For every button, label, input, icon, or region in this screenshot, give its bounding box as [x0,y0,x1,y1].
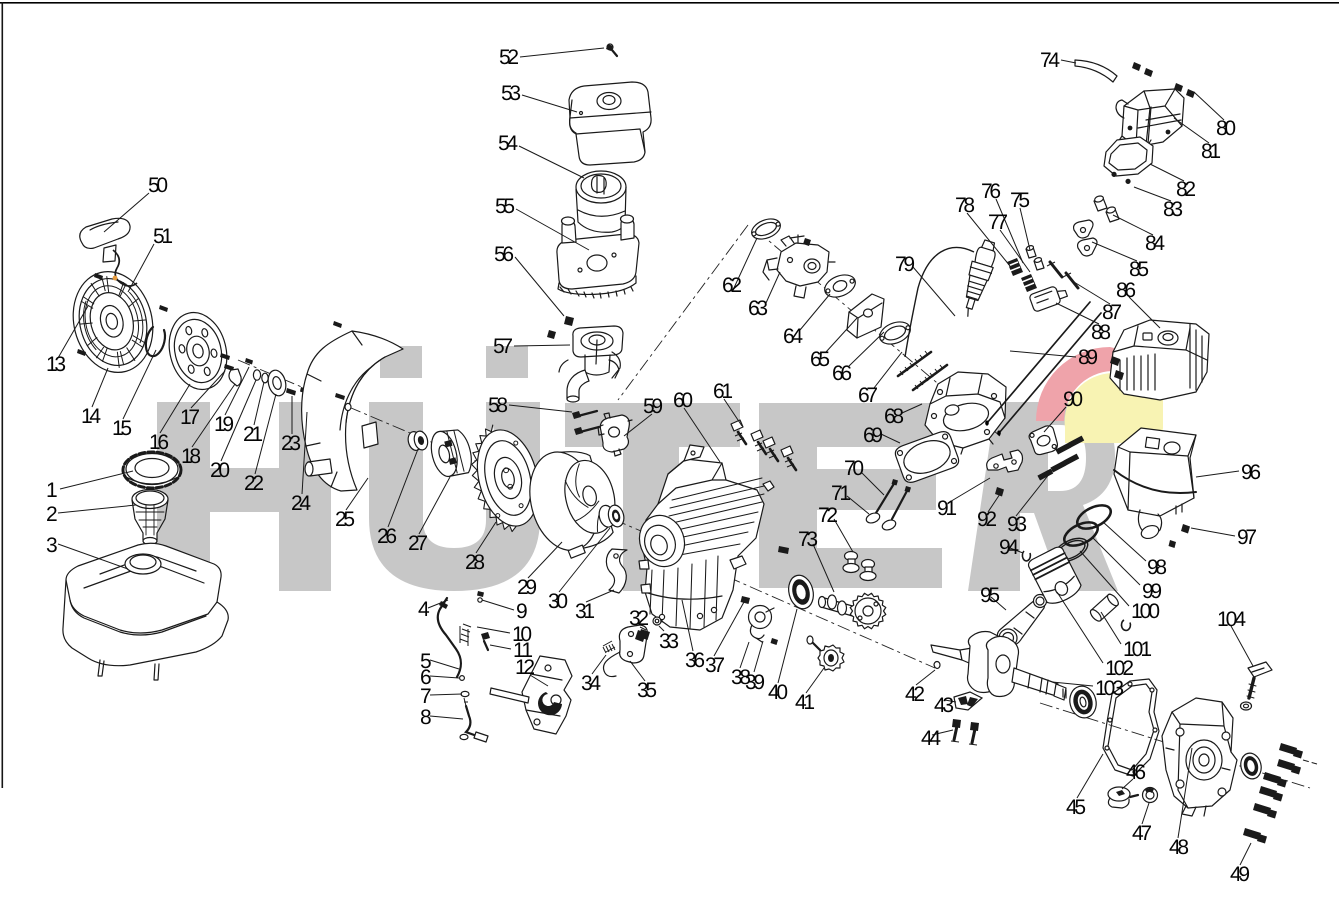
svg-text:48: 48 [1169,836,1189,859]
svg-text:19: 19 [214,413,234,436]
svg-text:31: 31 [575,600,595,623]
svg-text:72: 72 [818,504,838,527]
svg-text:36: 36 [685,649,705,672]
svg-text:84: 84 [1145,232,1165,255]
svg-text:28: 28 [465,551,485,574]
svg-text:9: 9 [516,600,528,623]
svg-text:98: 98 [1147,556,1167,579]
svg-text:78: 78 [955,194,975,217]
svg-text:1: 1 [46,479,58,502]
svg-text:103: 103 [1095,677,1124,700]
svg-text:94: 94 [999,536,1019,559]
svg-text:49: 49 [1230,863,1250,886]
svg-text:81: 81 [1201,140,1221,163]
svg-text:42: 42 [905,683,925,706]
svg-text:41: 41 [795,691,815,714]
svg-text:55: 55 [495,195,515,218]
svg-text:13: 13 [46,353,66,376]
svg-text:85: 85 [1129,258,1149,281]
svg-text:59: 59 [643,395,663,418]
svg-text:92: 92 [977,508,997,531]
svg-text:53: 53 [501,82,521,105]
svg-text:21: 21 [243,423,263,446]
svg-text:22: 22 [244,472,264,495]
svg-text:20: 20 [210,459,230,482]
svg-text:32: 32 [629,607,649,630]
svg-text:30: 30 [548,590,568,613]
svg-text:47: 47 [1132,822,1152,845]
svg-text:54: 54 [498,132,518,155]
svg-text:88: 88 [1091,321,1111,344]
svg-text:7: 7 [420,685,432,708]
svg-text:86: 86 [1116,279,1136,302]
svg-text:3: 3 [46,534,58,557]
svg-text:33: 33 [659,630,679,653]
svg-text:14: 14 [81,405,101,428]
svg-text:97: 97 [1237,526,1257,549]
svg-text:44: 44 [921,727,941,750]
svg-text:69: 69 [863,424,883,447]
svg-text:4: 4 [418,598,430,621]
svg-text:17: 17 [180,406,200,429]
svg-text:63: 63 [748,297,768,320]
svg-text:18: 18 [181,445,201,468]
svg-text:29: 29 [517,576,537,599]
svg-text:24: 24 [291,492,311,515]
svg-text:40: 40 [768,681,788,704]
svg-text:73: 73 [798,528,818,551]
svg-text:90: 90 [1063,388,1083,411]
svg-text:68: 68 [884,405,904,428]
svg-text:51: 51 [153,225,173,248]
svg-text:60: 60 [673,389,693,412]
svg-text:93: 93 [1007,513,1027,536]
svg-text:77: 77 [988,211,1008,234]
svg-text:52: 52 [499,46,519,69]
svg-text:12: 12 [515,656,535,679]
svg-text:74: 74 [1040,49,1060,72]
svg-text:65: 65 [810,348,830,371]
svg-text:27: 27 [408,532,428,555]
svg-text:25: 25 [335,508,355,531]
svg-text:16: 16 [149,431,169,454]
svg-text:79: 79 [895,253,915,276]
svg-text:89: 89 [1078,346,1098,369]
svg-text:100: 100 [1131,600,1160,623]
svg-text:70: 70 [844,457,864,480]
svg-text:61: 61 [713,380,733,403]
svg-text:15: 15 [112,417,132,440]
svg-text:96: 96 [1241,461,1261,484]
svg-text:67: 67 [858,384,878,407]
svg-text:2: 2 [46,503,58,526]
svg-text:64: 64 [783,325,803,348]
svg-text:50: 50 [148,174,168,197]
svg-text:75: 75 [1010,189,1030,212]
svg-text:39: 39 [745,671,765,694]
svg-text:26: 26 [377,525,397,548]
svg-text:104: 104 [1217,608,1246,631]
svg-text:76: 76 [981,180,1001,203]
svg-text:43: 43 [934,694,954,717]
svg-text:37: 37 [705,654,725,677]
svg-text:80: 80 [1216,117,1236,140]
svg-text:56: 56 [494,243,514,266]
svg-text:62: 62 [722,274,742,297]
svg-text:45: 45 [1066,796,1086,819]
svg-text:8: 8 [420,706,432,729]
svg-text:23: 23 [281,432,301,455]
svg-text:34: 34 [581,672,601,695]
svg-text:35: 35 [637,679,657,702]
svg-text:83: 83 [1163,198,1183,221]
svg-text:57: 57 [493,335,513,358]
svg-text:91: 91 [937,497,957,520]
svg-text:46: 46 [1126,761,1146,784]
svg-text:71: 71 [831,482,851,505]
svg-text:66: 66 [832,362,852,385]
svg-text:58: 58 [488,394,508,417]
svg-text:95: 95 [980,584,1000,607]
